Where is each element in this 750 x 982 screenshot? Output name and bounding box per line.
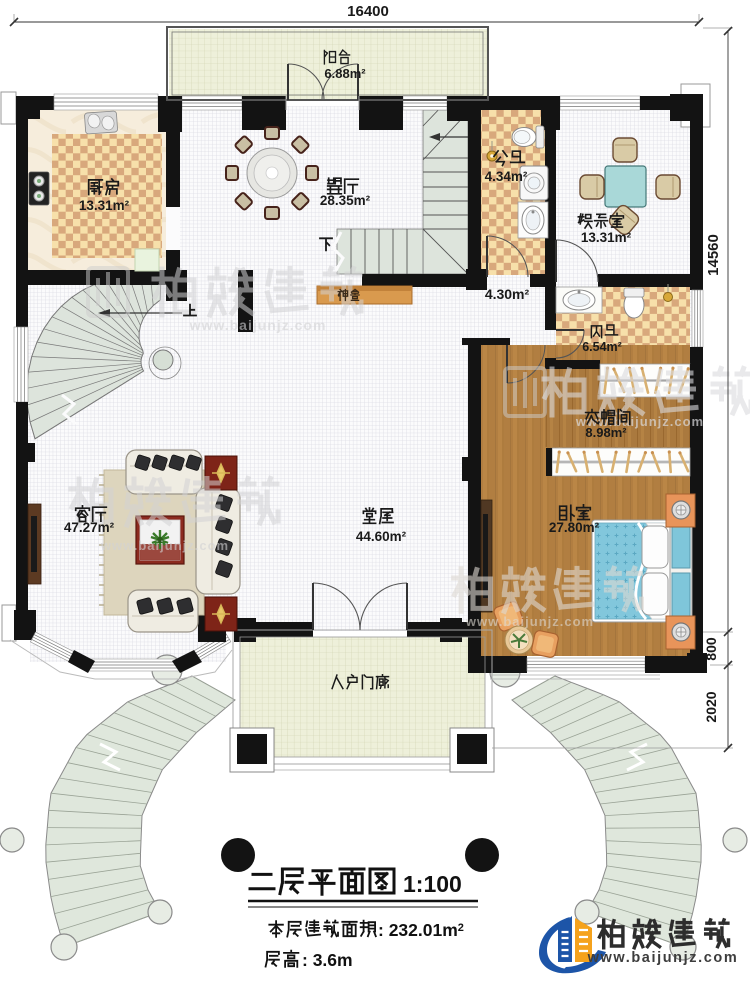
svg-text:8.98m²: 8.98m² [585,425,627,440]
svg-text:13.31m²: 13.31m² [581,230,632,245]
svg-text:: 3.6m: : 3.6m [302,950,353,970]
svg-text:27.80m²: 27.80m² [549,520,600,535]
svg-text:www.baijunjz.com: www.baijunjz.com [100,538,229,553]
svg-text:2020: 2020 [703,691,719,722]
svg-text:1:100: 1:100 [403,871,462,897]
svg-text:6.88m²: 6.88m² [324,66,366,81]
svg-text:16400: 16400 [347,3,389,20]
svg-text:: 232.01m2: : 232.01m2 [378,920,464,940]
svg-text:6.54m²: 6.54m² [582,340,622,354]
svg-text:14560: 14560 [705,234,722,276]
svg-text:800: 800 [703,637,719,661]
svg-text:28.35m²: 28.35m² [320,193,371,208]
svg-text:www.baijunjz.com: www.baijunjz.com [587,950,739,966]
svg-text:4.30m²: 4.30m² [485,286,530,302]
svg-text:13.31m²: 13.31m² [79,198,130,213]
svg-text:47.27m²: 47.27m² [64,520,115,535]
svg-text:www.baijunjz.com: www.baijunjz.com [189,317,327,333]
svg-text:4.34m²: 4.34m² [485,169,528,184]
svg-text:44.60m²: 44.60m² [356,529,407,544]
svg-text:www.baijunjz.com: www.baijunjz.com [465,614,594,629]
